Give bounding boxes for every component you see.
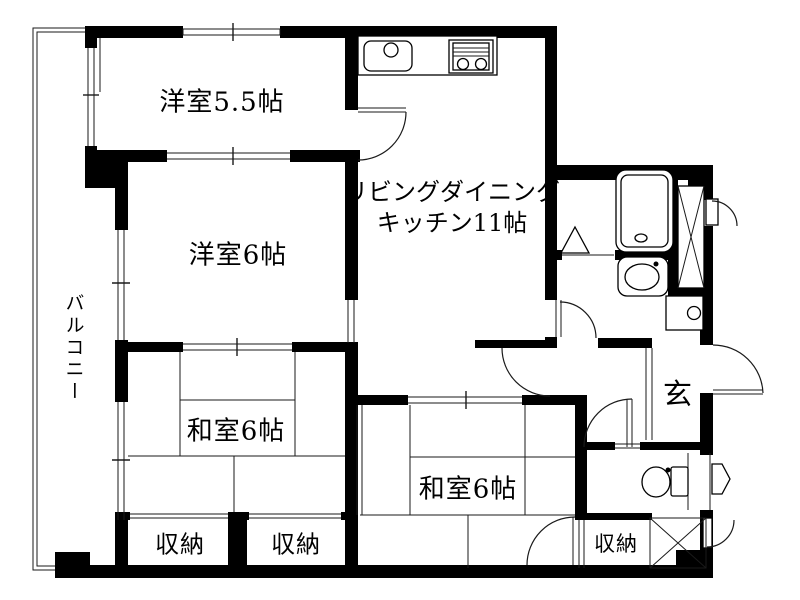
- room-label-storage-west: 収納: [155, 525, 205, 560]
- washing-machine-pan-icon: [666, 296, 703, 330]
- pipe-space-x-icon: [678, 186, 704, 288]
- room-label-western-5-5: 洋室5.5帖: [159, 82, 284, 119]
- toilet-icon: [642, 467, 688, 497]
- room-label-ldk: リビングダイニング キッチン11帖: [344, 177, 560, 239]
- room-label-entrance: 玄: [663, 371, 693, 413]
- washbasin-icon: [618, 257, 668, 296]
- walls: [55, 26, 713, 578]
- room-label-ldk-line1: リビングダイニング: [344, 177, 560, 208]
- laundry-triangle-icon: [561, 227, 589, 253]
- room-label-storage-east: 収納: [594, 528, 638, 558]
- floor-plan: 洋室5.5帖 洋室6帖 リビングダイニング キッチン11帖 和室6帖 和室6帖 …: [0, 0, 800, 600]
- gas-stove-icon: [449, 40, 493, 73]
- room-label-japanese-west: 和室6帖: [187, 411, 286, 448]
- room-label-ldk-line2: キッチン11帖: [344, 208, 560, 239]
- room-label-western-6: 洋室6帖: [189, 235, 288, 272]
- floor-plan-drawing: [0, 0, 800, 600]
- bathtub-icon: [616, 170, 673, 252]
- room-label-balcony: バルコニー: [61, 293, 88, 403]
- kitchen-counter: [358, 36, 497, 75]
- meter-box-pentagon-icon: [712, 464, 730, 494]
- room-label-storage-middle: 収納: [271, 525, 321, 560]
- kitchen-sink-icon: [364, 41, 412, 71]
- room-label-japanese-center: 和室6帖: [419, 469, 518, 506]
